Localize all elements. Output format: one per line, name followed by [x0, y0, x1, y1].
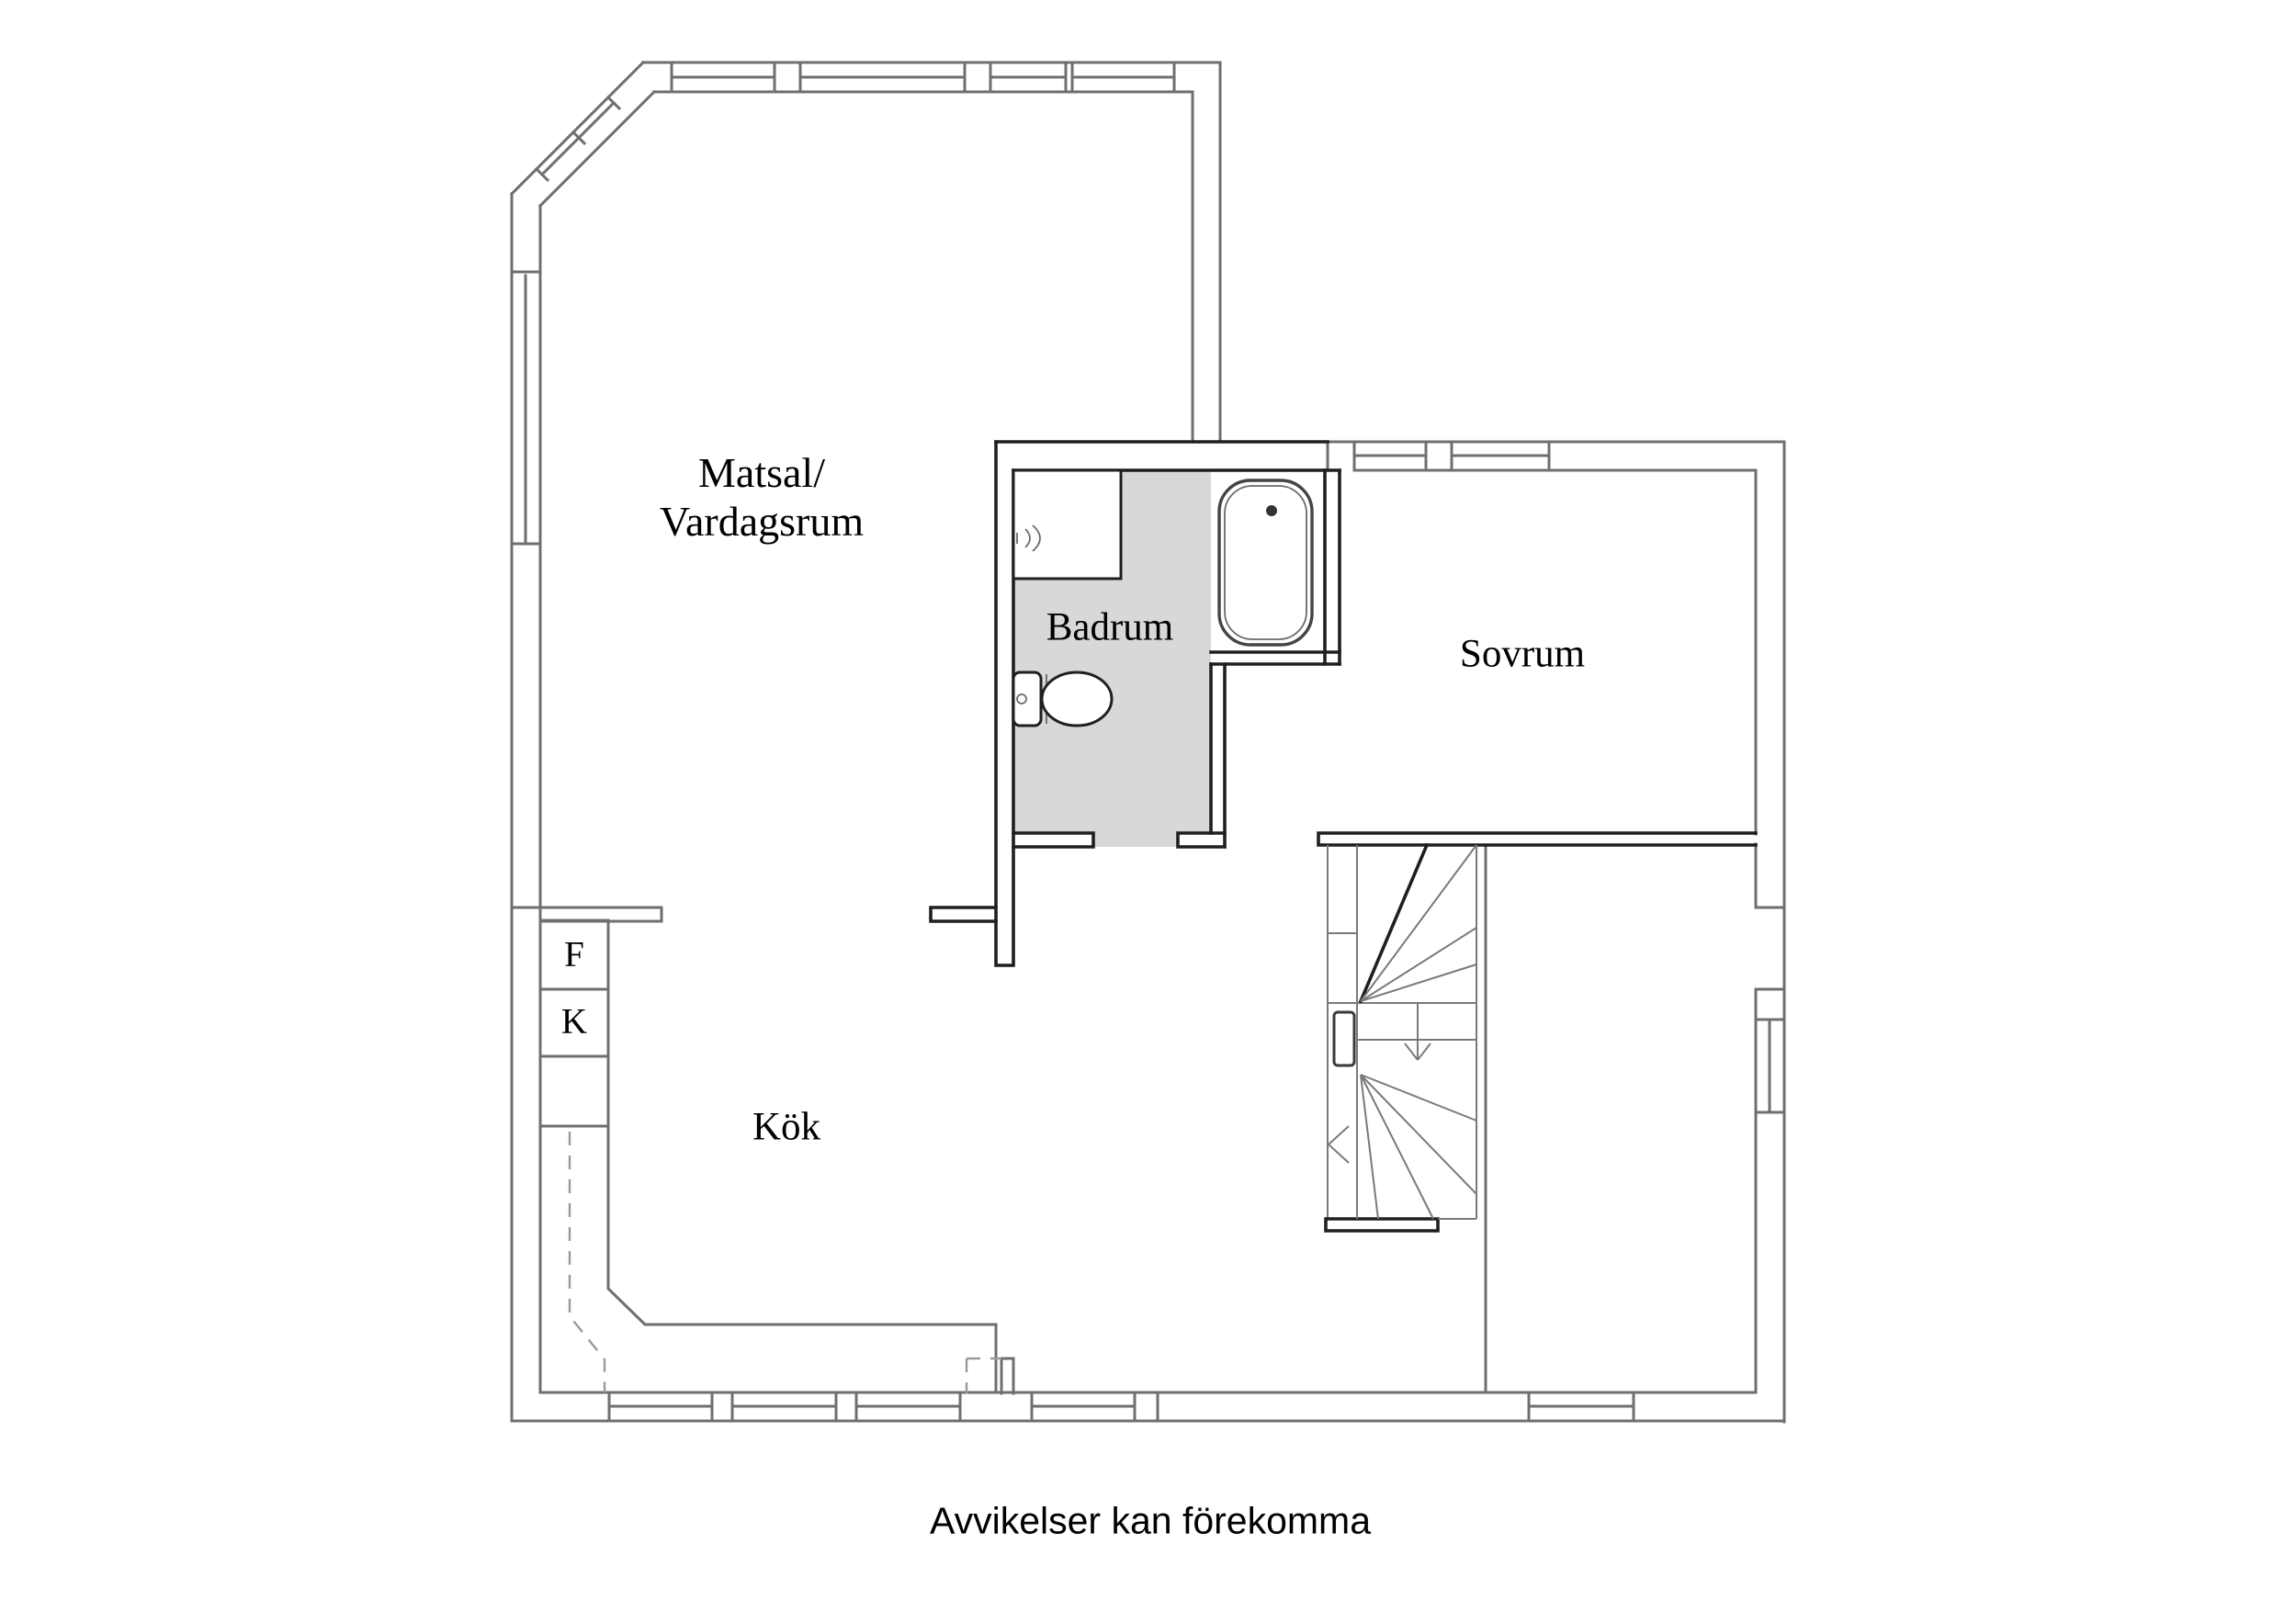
room-label-kitchen: Kök [752, 1104, 820, 1149]
room-label-living: Matsal/ Vardagsrum [660, 449, 864, 547]
dashed-lines [570, 1132, 1001, 1393]
living-label-line2: Vardagsrum [660, 498, 864, 547]
floor-plan-drawing [0, 0, 2296, 1623]
appliance-label-freezer: F [564, 935, 584, 976]
floor-plan-page: Matsal/ Vardagsrum Badrum Sovrum Kök F K… [0, 0, 2296, 1623]
living-label-line1: Matsal/ [660, 449, 864, 498]
stair-newel-post [1334, 1012, 1354, 1065]
shower-sink-icon [1013, 470, 1121, 579]
toilet-icon [1013, 672, 1112, 726]
stair-left-arrow-icon [1329, 1126, 1349, 1163]
staircase [1326, 845, 1476, 1231]
room-label-bathroom: Badrum [1046, 604, 1174, 649]
room-label-bedroom: Sovrum [1460, 631, 1585, 676]
stair-down-arrow-icon [1405, 1003, 1431, 1060]
bathtub-icon [1219, 480, 1312, 645]
appliance-label-fridge: K [561, 1002, 587, 1043]
bathtub-drain [1266, 505, 1277, 516]
disclaimer-caption: Avvikelser kan förekomma [930, 1500, 1371, 1543]
